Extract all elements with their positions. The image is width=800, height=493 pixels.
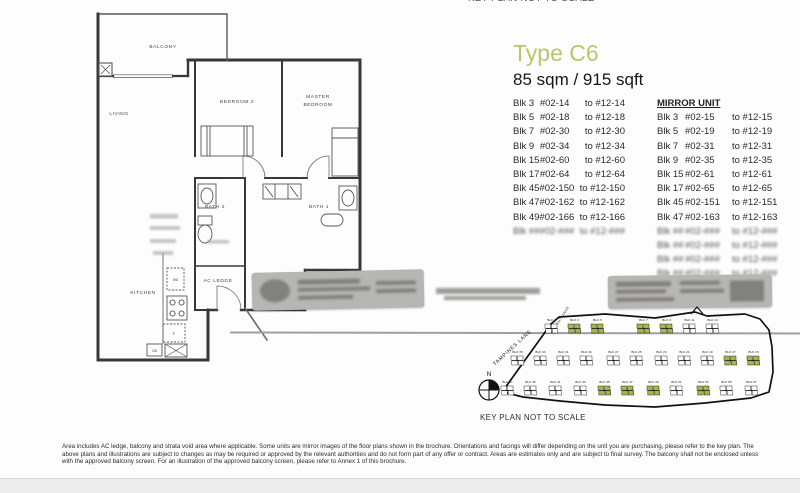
svg-text:BLK 49: BLK 49	[648, 380, 658, 384]
compass-n-label: N	[487, 371, 492, 378]
svg-text:BLK 43: BLK 43	[575, 380, 585, 384]
label-db: DB	[152, 349, 156, 353]
block-cluster: BLK 55	[720, 380, 733, 395]
block-cluster: BLK 3	[568, 318, 581, 333]
block-cluster: BLK 7	[637, 318, 650, 333]
floorplan-drawing: BALCONY LIVING BEDROOM 2 MASTER BEDROOM …	[55, 8, 375, 370]
unit-listing: Blk 3#02-14to #12-14Blk 5#02-18to #12-18…	[513, 97, 787, 282]
block-cluster: BLK 47	[621, 380, 634, 395]
block-cluster: BLK 23	[655, 350, 668, 365]
unit-row: Blk ###02-###to #12-###	[657, 239, 787, 253]
block-clusters: BLK 1BLK 3BLK 5BLK 7BLK 9BLK 11BLK 13BLK…	[501, 318, 760, 395]
block-cluster: BLK 35	[511, 350, 524, 365]
ac-unit-icon	[99, 63, 112, 76]
block-cluster: BLK 37	[501, 380, 514, 395]
unit-row: Blk ###02-###to #12-###	[513, 225, 625, 239]
block-cluster: BLK 57	[745, 380, 758, 395]
block-cluster: BLK 31	[557, 350, 570, 365]
cutoff-text-previous-page: KEY PLAN NOT TO SCALE	[468, 0, 595, 4]
svg-text:BLK 11: BLK 11	[685, 318, 695, 322]
svg-text:BLK 37: BLK 37	[502, 380, 512, 384]
unit-row: Blk 3#02-15to #12-15	[657, 111, 787, 125]
svg-text:BLK 25: BLK 25	[631, 350, 641, 354]
unit-row: Blk 3#02-14to #12-14	[513, 97, 625, 111]
unit-row: Blk 15#02-61to #12-61	[657, 168, 787, 182]
svg-text:BLK 35: BLK 35	[512, 350, 522, 354]
label-bedroom2: BEDROOM 2	[220, 99, 254, 105]
disclaimer-text: Area includes AC ledge, balcony and stra…	[62, 443, 768, 466]
block-cluster: BLK 43	[574, 380, 587, 395]
label-master-2: BEDROOM	[304, 102, 333, 108]
label-master-1: MASTER	[306, 94, 330, 100]
type-title: Type C6	[513, 40, 599, 67]
svg-text:BLK 31: BLK 31	[558, 350, 568, 354]
svg-text:BLK 27: BLK 27	[608, 350, 618, 354]
unit-list: Blk 3#02-14to #12-14Blk 5#02-18to #12-18…	[513, 97, 625, 282]
floorplan: BALCONY LIVING BEDROOM 2 MASTER BEDROOM …	[55, 8, 375, 370]
area-text: 85 sqm / 915 sqft	[513, 70, 643, 90]
svg-text:BLK 39: BLK 39	[525, 380, 535, 384]
svg-text:BLK 55: BLK 55	[721, 380, 731, 384]
svg-text:BLK 3: BLK 3	[570, 318, 579, 322]
sliding-door	[113, 75, 173, 78]
label-acledge: AC LEDGE	[203, 278, 232, 284]
label-balcony: BALCONY	[149, 44, 176, 50]
block-cluster: BLK 49	[647, 380, 660, 395]
door-entrance	[217, 286, 241, 310]
bath2-fixtures-icon	[198, 184, 216, 243]
svg-text:BLK 47: BLK 47	[622, 380, 632, 384]
unit-row: Blk ###02-###to #12-###	[657, 225, 787, 239]
keyplan: N TAMPINES LANE MAIN ENTRANCE BLK 1BLK 3…	[455, 302, 800, 414]
svg-text:BLK 13: BLK 13	[707, 318, 717, 322]
block-cluster: BLK 15	[747, 350, 760, 365]
door-master	[307, 156, 329, 178]
block-cluster: BLK 33	[534, 350, 547, 365]
label-bath2: BATH 2	[205, 204, 225, 210]
block-cluster: BLK 13	[706, 318, 719, 333]
block-cluster: BLK 5	[591, 318, 604, 333]
unit-row: Blk 45#02-151to #12-151	[657, 196, 787, 210]
unit-row: Blk 49#02-166to #12-166	[513, 211, 625, 225]
svg-text:BLK 51: BLK 51	[671, 380, 681, 384]
unit-row: Blk 17#02-64to #12-64	[513, 168, 625, 182]
unit-row: Blk ###02-###to #12-###	[657, 253, 787, 267]
block-cluster: BLK 45	[598, 380, 611, 395]
label-bath1: BATH 1	[309, 204, 329, 210]
svg-text:BLK 1: BLK 1	[547, 318, 556, 322]
unit-row: Blk 45#02-150to #12-150	[513, 182, 625, 196]
unit-row: Blk 5#02-19to #12-19	[657, 125, 787, 139]
svg-text:BLK 19: BLK 19	[702, 350, 712, 354]
bed-master-icon	[332, 128, 358, 176]
unit-row: Blk 47#02-163to #12-163	[657, 211, 787, 225]
svg-text:BLK 7: BLK 7	[639, 318, 648, 322]
block-cluster: BLK 41	[549, 380, 562, 395]
svg-text:BLK 23: BLK 23	[656, 350, 666, 354]
bed-bedroom2-icon	[201, 126, 253, 156]
unit-row: Blk 5#02-18to #12-18	[513, 111, 625, 125]
svg-text:BLK 15: BLK 15	[748, 350, 758, 354]
block-cluster: BLK 11	[683, 318, 696, 333]
unit-row: Blk 9#02-35to #12-35	[657, 154, 787, 168]
blurred-stamp-left	[252, 269, 425, 311]
svg-text:BLK 41: BLK 41	[550, 380, 560, 384]
block-cluster: BLK 51	[670, 380, 683, 395]
label-kitchen: KITCHEN	[130, 290, 155, 296]
unit-row: Blk 17#02-65to #12-65	[657, 182, 787, 196]
svg-text:BLK 9: BLK 9	[662, 318, 671, 322]
unit-row: Blk 9#02-34to #12-34	[513, 140, 625, 154]
unit-row: Blk 15#02-60to #12-60	[513, 154, 625, 168]
compass-icon: N	[479, 371, 499, 400]
mirror-unit-header: MIRROR UNIT	[657, 97, 787, 111]
block-cluster: BLK 53	[697, 380, 710, 395]
mirror-unit-list: MIRROR UNIT Blk 3#02-15to #12-15Blk 5#02…	[657, 97, 787, 282]
svg-text:BLK 21: BLK 21	[679, 350, 689, 354]
svg-text:BLK 57: BLK 57	[746, 380, 756, 384]
unit-row: Blk 7#02-31to #12-31	[657, 140, 787, 154]
blurred-text-band	[436, 287, 540, 301]
keyplan-caption: KEY PLAN NOT TO SCALE	[480, 413, 586, 422]
label-fridge: F	[173, 332, 176, 336]
block-cluster: BLK 17	[724, 350, 737, 365]
blurred-plan-text	[150, 214, 229, 255]
svg-text:BLK 17: BLK 17	[725, 350, 735, 354]
unit-row: Blk 7#02-30to #12-30	[513, 125, 625, 139]
kitchen-fixtures-icon	[147, 253, 187, 357]
label-living: LIVING	[109, 111, 128, 117]
block-cluster: BLK 9	[660, 318, 673, 333]
page-bottom-edge	[0, 478, 800, 493]
keyplan-drawing: N TAMPINES LANE MAIN ENTRANCE BLK 1BLK 3…	[455, 302, 800, 414]
door-bedroom2	[243, 156, 265, 178]
svg-text:BLK 53: BLK 53	[698, 380, 708, 384]
block-cluster: BLK 21	[678, 350, 691, 365]
brochure-page: KEY PLAN NOT TO SCALE	[0, 0, 800, 493]
wall-acledge-slant	[245, 308, 267, 340]
block-cluster: BLK 25	[630, 350, 643, 365]
wardrobe-icon	[263, 184, 301, 199]
block-cluster: BLK 19	[701, 350, 714, 365]
label-wd: WD	[173, 278, 179, 282]
block-cluster: BLK 39	[524, 380, 537, 395]
svg-text:BLK 29: BLK 29	[581, 350, 591, 354]
unit-row: Blk 47#02-162to #12-162	[513, 196, 625, 210]
svg-text:BLK 45: BLK 45	[599, 380, 609, 384]
svg-text:BLK 5: BLK 5	[593, 318, 602, 322]
wall-balcony-outer	[100, 14, 227, 60]
block-cluster: BLK 29	[580, 350, 593, 365]
block-cluster: BLK 27	[607, 350, 620, 365]
svg-text:BLK 33: BLK 33	[535, 350, 545, 354]
